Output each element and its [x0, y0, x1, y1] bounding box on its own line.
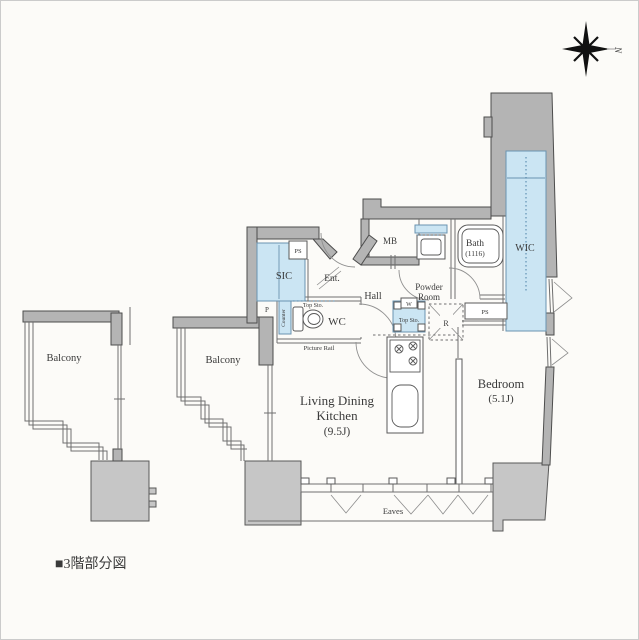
wall-top-band — [363, 199, 491, 219]
wall-east-lower — [542, 367, 554, 465]
label-picture-rail: Picture Rail — [304, 345, 335, 352]
label-washer: W — [406, 302, 412, 308]
label-mb: MB — [383, 236, 397, 246]
compass-north-label: N — [613, 46, 623, 54]
label-powder-1: Powder — [415, 282, 443, 292]
label-counter: Counter — [281, 309, 287, 327]
label-p: P — [265, 306, 269, 314]
floor-plan-page: N — [0, 0, 639, 640]
neighbor-block-right — [493, 463, 549, 531]
label-entrance: Ent. — [324, 274, 340, 284]
label-bedroom-1: Bedroom — [478, 377, 525, 391]
bedroom-west-wall — [456, 359, 462, 484]
label-powder-2: Room — [418, 292, 440, 302]
neighbor-block-mid — [245, 461, 301, 525]
label-wc-top-storage: Top Sto. — [303, 303, 324, 309]
label-sic: SIC — [276, 271, 292, 282]
label-ldk-2: Kitchen — [316, 408, 358, 423]
label-bath-2: (1116) — [465, 249, 485, 258]
ldk-balcony-window — [264, 365, 276, 461]
bedroom-north-wall — [462, 321, 506, 325]
neighbor-block-left-tooth-2 — [149, 501, 156, 507]
toilet-tank — [293, 307, 303, 331]
wall-southwest-corner — [259, 317, 273, 365]
balcony-left-railing — [25, 322, 107, 460]
wall-entrance-top — [247, 227, 319, 239]
label-bath-1: Bath — [466, 239, 484, 249]
label-ps-top: PS — [294, 248, 302, 255]
label-wic: WIC — [515, 243, 535, 254]
balcony-left-wall-stub — [113, 449, 122, 461]
label-refrigerator: R — [443, 319, 449, 328]
wall-east-chunk — [546, 313, 554, 335]
east-window-1-triangle — [554, 282, 572, 312]
east-window-2 — [547, 337, 551, 367]
vanity-counter-strip — [415, 225, 447, 233]
label-bedroom-2: (5.1J) — [488, 393, 514, 405]
footer-caption: ■3階部分図 — [55, 556, 126, 572]
label-washer-top-storage: Top Sto. — [399, 318, 420, 324]
label-ps-bottom: PS — [481, 309, 489, 316]
balcony-mid-railing — [177, 328, 247, 461]
wall-column-notch — [484, 117, 492, 137]
floor-plan-canvas: N — [1, 1, 639, 640]
south-window-mullions — [301, 478, 493, 484]
balcony-left-top-wall — [23, 311, 119, 322]
balcony-mid — [173, 317, 269, 461]
label-hall: Hall — [364, 291, 381, 302]
wall-west — [247, 227, 257, 323]
east-window-1 — [549, 279, 554, 313]
south-window-opening-triangles — [331, 495, 488, 514]
label-balcony-left: Balcony — [47, 353, 83, 364]
neighbor-block-left-tooth-1 — [149, 488, 156, 494]
neighbor-block-left — [91, 461, 149, 521]
balcony-left — [23, 307, 130, 461]
east-window-2-triangle — [552, 339, 568, 365]
bath-door-arc — [449, 268, 480, 299]
compass-rose: N — [562, 21, 623, 77]
south-window-band — [301, 484, 493, 492]
label-wc: WC — [328, 316, 346, 328]
balcony-left-right-wall — [111, 313, 122, 345]
compass-star — [562, 21, 610, 77]
label-ldk-1: Living Dining — [300, 393, 375, 408]
label-balcony-mid: Balcony — [206, 355, 242, 366]
wall-mb-bottom — [361, 257, 419, 265]
label-ldk-3: (9.5J) — [324, 426, 351, 438]
label-eaves: Eaves — [383, 506, 403, 516]
